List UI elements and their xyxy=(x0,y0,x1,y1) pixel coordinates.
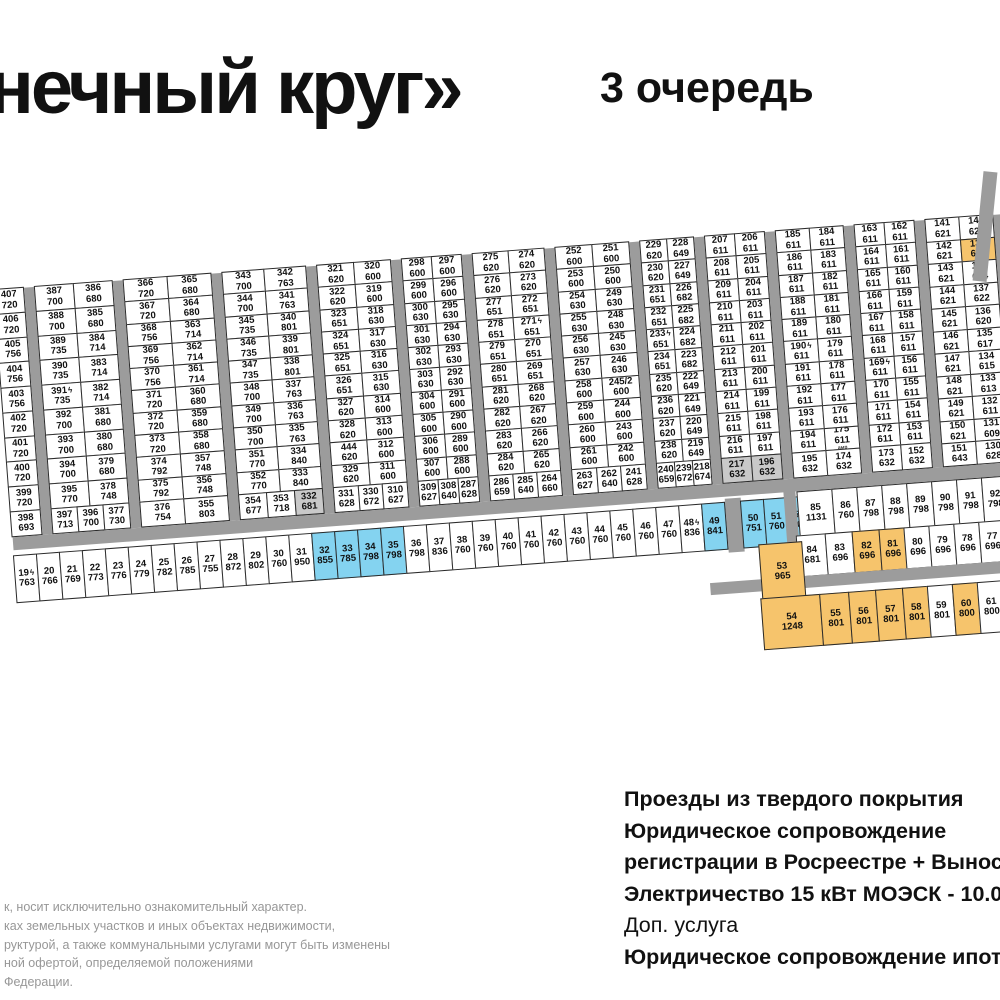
plot-218: 218674 xyxy=(692,459,713,486)
plot-area: 1248 xyxy=(782,621,804,633)
plot-area: 681 xyxy=(804,555,821,567)
plot-area: 621 xyxy=(943,341,960,353)
band: 387700388700389735390735391ϟ735392700393… xyxy=(35,281,131,534)
plot-area: 681 xyxy=(301,501,318,513)
plot-area: 798 xyxy=(963,501,980,513)
plot-82: 82696 xyxy=(852,529,883,573)
plot-area: 756 xyxy=(7,374,24,386)
plot-area: 617 xyxy=(977,339,994,351)
plot-area: 714 xyxy=(91,368,108,380)
plot-area: 720 xyxy=(14,473,31,485)
disclaimer-line: ной офертой, определяемой положениями xyxy=(4,954,390,973)
plot-area: 628 xyxy=(626,477,643,489)
plot-404: 404756 xyxy=(0,361,31,389)
plot-53: 53965 xyxy=(758,541,806,602)
plot-330: 330672 xyxy=(357,483,385,511)
plot-area: 760 xyxy=(592,535,609,547)
plot-area: 696 xyxy=(859,551,876,563)
plot-area: 965 xyxy=(774,571,791,583)
phase-label: 3 очередь xyxy=(600,64,814,113)
plot-area: 680 xyxy=(95,417,112,429)
plot-area: 720 xyxy=(11,424,28,436)
plot-area: 773 xyxy=(88,573,105,585)
disclaimer-line: Федерации. xyxy=(4,973,390,992)
plot-area: 621 xyxy=(947,386,964,398)
plot-area: 798 xyxy=(988,499,1000,511)
plot-174: 174632 xyxy=(825,447,862,476)
plot-area: 748 xyxy=(101,492,118,504)
plot-54: 541248 xyxy=(760,594,824,650)
plot-area: 677 xyxy=(246,506,263,518)
plot-area: 696 xyxy=(985,541,1000,553)
plot-area: 643 xyxy=(952,454,969,466)
electricity-bolt-icon: ϟ xyxy=(695,517,700,526)
plot-376: 376754 xyxy=(139,498,186,527)
plot-area: 756 xyxy=(9,399,26,411)
electricity-bolt-icon: ϟ xyxy=(537,316,542,325)
band-bottom-row: 217632196632 xyxy=(722,454,784,483)
band-bottom-row: 398693 xyxy=(11,510,43,537)
feature-item: Проезды из твердого покрытия xyxy=(624,784,1000,816)
plot-area: 628 xyxy=(339,499,356,511)
plot-area: 700 xyxy=(56,420,73,432)
plot-402: 402720 xyxy=(2,410,35,438)
band: 2076112086112096112106112116112126112136… xyxy=(705,232,783,484)
plot-area: 755 xyxy=(202,564,219,576)
plot-area: 836 xyxy=(432,547,449,559)
plot-area: 621 xyxy=(938,274,955,286)
plot-331: 331628 xyxy=(333,485,361,513)
plot-area: 760 xyxy=(455,545,472,557)
plot-area: 680 xyxy=(86,294,103,306)
plot-area: 802 xyxy=(248,561,265,573)
plot-area: 696 xyxy=(885,549,902,561)
band-bottom-row: 240659239672218674 xyxy=(657,460,713,489)
plot-area: 798 xyxy=(363,552,380,564)
band: 163611164611165611166611167611168611169ϟ… xyxy=(855,221,933,473)
plot-85: 851131 xyxy=(796,489,835,538)
plot-131: 131609 xyxy=(973,416,1000,442)
plot-area: 640 xyxy=(602,479,619,491)
plot-354: 354677 xyxy=(238,492,269,520)
plot-area: 770 xyxy=(62,494,79,506)
plot-area: 720 xyxy=(13,448,30,460)
plot-area: 760 xyxy=(478,543,495,555)
features-list: Проезды из твердого покрытия Юридическое… xyxy=(624,784,1000,974)
band: 2756202766202776512786512796512806512816… xyxy=(473,249,563,502)
plot-217: 217632 xyxy=(721,456,754,484)
plot-area: 798 xyxy=(888,506,905,518)
plot-area: 680 xyxy=(97,442,114,454)
plot-area: 720 xyxy=(1,300,18,312)
plot-407: 407720 xyxy=(0,287,26,315)
plot-area: 621 xyxy=(940,296,957,308)
plot-area: 760 xyxy=(769,521,786,533)
plot-area: 760 xyxy=(638,531,655,543)
plot-133: 133613 xyxy=(970,371,1000,397)
plot-area: 632 xyxy=(836,461,853,473)
plot-286: 286659 xyxy=(488,474,515,502)
plot-area: 769 xyxy=(65,574,82,586)
plot-area: 613 xyxy=(980,384,997,396)
plot-area: 700 xyxy=(49,321,66,333)
plot-area: 659 xyxy=(494,487,511,499)
plot-area: 640 xyxy=(518,485,535,497)
plot-area: 779 xyxy=(133,569,150,581)
plot-area: 632 xyxy=(759,467,776,479)
plot-area: 672 xyxy=(363,497,380,509)
plot-area: 855 xyxy=(317,555,334,567)
electricity-bolt-icon: ϟ xyxy=(807,341,812,350)
plot-area: 720 xyxy=(3,325,20,337)
band: 185611186611187611188611189611190ϟ611191… xyxy=(776,226,862,478)
band: 3437003447003457353467353477353487003497… xyxy=(222,267,324,521)
plot-area: 760 xyxy=(838,510,855,522)
page-title: нечный круг» xyxy=(0,44,461,131)
plot-area: 621 xyxy=(950,431,967,443)
plot-area: 735 xyxy=(51,346,68,358)
plot-area: 674 xyxy=(694,472,711,484)
plot-area: 659 xyxy=(658,475,675,487)
plot-area: 700 xyxy=(60,470,77,482)
plot-400: 400720 xyxy=(6,460,39,488)
feature-item: Электричество 15 кВт МОЭСК - 10.000 xyxy=(624,879,1000,911)
band-bottom-row: 309627308640287628 xyxy=(419,477,481,506)
disclaimer-line: к, носит исключительно ознакомительный х… xyxy=(4,898,390,917)
plot-area: 615 xyxy=(979,361,996,373)
plot-area: 714 xyxy=(93,393,110,405)
plot-399: 399720 xyxy=(8,484,41,512)
plot-151: 151643 xyxy=(941,441,978,467)
disclaimer-text: к, носит исключительно ознакомительный х… xyxy=(4,898,390,992)
plot-area: 798 xyxy=(409,548,426,560)
plot-area: 1131 xyxy=(806,512,827,524)
masterplan-map: 4077204067204057564047564037564027204017… xyxy=(0,208,1000,607)
plot-area: 760 xyxy=(500,542,517,554)
plot-area: 760 xyxy=(271,559,288,571)
plot-area: 800 xyxy=(959,608,976,620)
feature-item: Юридическое сопровождение xyxy=(624,816,1000,848)
plot-area: 798 xyxy=(863,508,880,520)
electricity-bolt-icon: ϟ xyxy=(30,567,35,576)
plot-355: 355803 xyxy=(183,495,230,524)
band: 3667203677203687563697563707563717203727… xyxy=(124,274,230,528)
plot-area: 801 xyxy=(909,612,926,624)
plot-area: 609 xyxy=(984,429,1000,441)
disclaimer-line: руктурой, а также коммунальными услугами… xyxy=(4,936,390,955)
disclaimer-line: ках земельных участков и иных объектах н… xyxy=(4,917,390,936)
plot-area: 632 xyxy=(802,464,819,476)
plot-area: 713 xyxy=(57,520,74,532)
plot-83: 83696 xyxy=(825,531,856,575)
plot-398: 398693 xyxy=(10,509,43,537)
plot-area: 801 xyxy=(828,618,845,630)
plot-49: 49841 xyxy=(701,502,729,552)
plot-396: 396700 xyxy=(76,504,105,532)
plot-area: 632 xyxy=(879,458,896,470)
plot-area: 872 xyxy=(225,562,242,574)
plot-397: 397713 xyxy=(51,506,80,534)
band: 3216203226203236513246513256513266513276… xyxy=(317,260,409,513)
plot-area: 782 xyxy=(156,567,173,579)
plot-area: 730 xyxy=(109,516,126,528)
plot-area: 798 xyxy=(938,503,955,515)
plot-area: 696 xyxy=(832,553,849,565)
plot-262: 262640 xyxy=(596,465,624,493)
plot-area: 754 xyxy=(155,512,172,524)
feature-item: Юридическое сопровождение ипотечн xyxy=(624,942,1000,974)
plot-area: 627 xyxy=(577,481,594,493)
plot-area: 621 xyxy=(936,251,953,263)
feature-item: Доп. услуга xyxy=(624,910,1000,942)
feature-item: регистрации в Росреестре + Вынос гра xyxy=(624,847,1000,879)
plot-287: 287628 xyxy=(457,476,480,504)
band-column: 4077204067204057564047564037564027204017… xyxy=(0,288,41,513)
plot-401: 401720 xyxy=(4,435,37,463)
plot-92: 92798 xyxy=(981,476,1000,524)
plot-area: 632 xyxy=(909,456,926,468)
band-bottom-row: 195632174632 xyxy=(793,448,863,478)
plot-area: 801 xyxy=(856,616,873,628)
electricity-bolt-icon: ϟ xyxy=(68,385,73,394)
plot-152: 152632 xyxy=(900,442,933,470)
plot-area: 628 xyxy=(986,451,1000,463)
plot-403: 403756 xyxy=(0,386,33,414)
plot-130: 130628 xyxy=(975,439,1000,465)
plot-area: 621 xyxy=(948,409,965,421)
plot-area: 680 xyxy=(99,467,116,479)
plot-area: 700 xyxy=(83,518,100,530)
plot-area: 760 xyxy=(523,540,540,552)
plot-area: 760 xyxy=(661,529,678,541)
plot-area: 680 xyxy=(88,319,105,331)
plot-area: 760 xyxy=(569,536,586,548)
plot-area: 841 xyxy=(707,526,724,538)
plot-area: 621 xyxy=(945,364,962,376)
plot-area: 672 xyxy=(676,473,693,485)
plot-406: 406720 xyxy=(0,311,28,339)
plot-area: 621 xyxy=(935,229,952,241)
plot-241: 241628 xyxy=(620,464,648,492)
plot-area: 801 xyxy=(883,614,900,626)
plot-353: 353718 xyxy=(266,490,297,518)
plot-area: 622 xyxy=(974,294,991,306)
plot-area: 693 xyxy=(18,523,35,535)
plot-area: 720 xyxy=(16,498,33,510)
band: 2986002996003006303016303026303036303046… xyxy=(402,255,480,507)
electricity-bolt-icon: ϟ xyxy=(666,329,671,338)
plot-area: 632 xyxy=(729,469,746,481)
plot-area: 640 xyxy=(441,491,458,503)
plot-area: 785 xyxy=(340,554,357,566)
plot-area: 611 xyxy=(982,406,998,418)
plot-area: 627 xyxy=(421,492,438,504)
plot-area: 760 xyxy=(615,533,632,545)
band-bottom-row: 173632152632 xyxy=(871,443,933,472)
plot-area: 696 xyxy=(935,545,952,557)
plot-264: 264660 xyxy=(536,470,563,498)
plot-310: 310627 xyxy=(382,482,410,510)
plot-area: 751 xyxy=(746,523,763,535)
plot-area: 735 xyxy=(52,371,69,383)
electricity-bolt-icon: ϟ xyxy=(885,357,890,366)
plot-area: 628 xyxy=(461,489,478,501)
plot-area: 800 xyxy=(984,607,1000,619)
plot-77: 77696 xyxy=(978,520,1000,564)
plot-area: 735 xyxy=(54,396,71,408)
plot-area: 801 xyxy=(934,610,951,622)
plot-area: 785 xyxy=(179,566,196,578)
plot-196: 196632 xyxy=(751,453,784,481)
plot-area: 756 xyxy=(5,350,22,362)
plot-area: 798 xyxy=(386,550,403,562)
plot-area: 660 xyxy=(542,483,559,495)
plot-173: 173632 xyxy=(870,444,903,472)
plot-area: 620 xyxy=(975,316,992,328)
plot-area: 700 xyxy=(58,445,75,457)
plot-area: 803 xyxy=(199,509,216,521)
plot-405: 405756 xyxy=(0,336,29,364)
plot-area: 696 xyxy=(910,547,927,559)
plot-area: 836 xyxy=(684,528,701,540)
plot-195: 195632 xyxy=(791,450,828,479)
plot-area: 700 xyxy=(47,297,64,309)
plot-area: 798 xyxy=(913,505,930,517)
plot-area: 621 xyxy=(941,319,958,331)
plot-area: 696 xyxy=(960,543,977,555)
plot-area: 776 xyxy=(111,571,128,583)
plot-area: 766 xyxy=(42,576,59,588)
band: 2526002536002546302556302566302576302586… xyxy=(555,242,647,495)
plot-285: 285640 xyxy=(512,472,539,500)
plot-area: 950 xyxy=(294,557,311,569)
plot-238: 238620 xyxy=(654,438,684,463)
plot-332: 332681 xyxy=(294,488,325,516)
plot-132: 132611 xyxy=(972,394,1000,420)
plot-263: 263627 xyxy=(571,467,599,495)
plot-area: 714 xyxy=(89,343,106,355)
plot-area: 763 xyxy=(19,578,36,590)
plot-area: 718 xyxy=(273,503,290,515)
plot-61: 61800 xyxy=(977,580,1000,634)
plot-area: 760 xyxy=(546,538,563,550)
plot-area: 627 xyxy=(388,495,405,507)
band: 229620230620231651232651233ϟ651234651235… xyxy=(640,237,712,488)
plot-377: 377730 xyxy=(102,502,131,530)
